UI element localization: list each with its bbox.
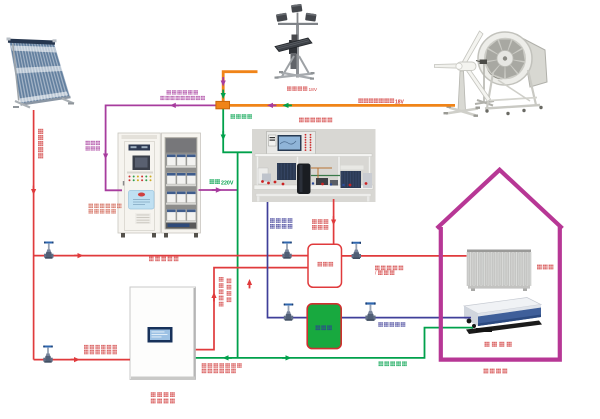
svg-text:18V: 18V bbox=[395, 99, 405, 105]
svg-text:220V: 220V bbox=[221, 180, 234, 186]
svg-text:18V: 18V bbox=[309, 87, 318, 93]
